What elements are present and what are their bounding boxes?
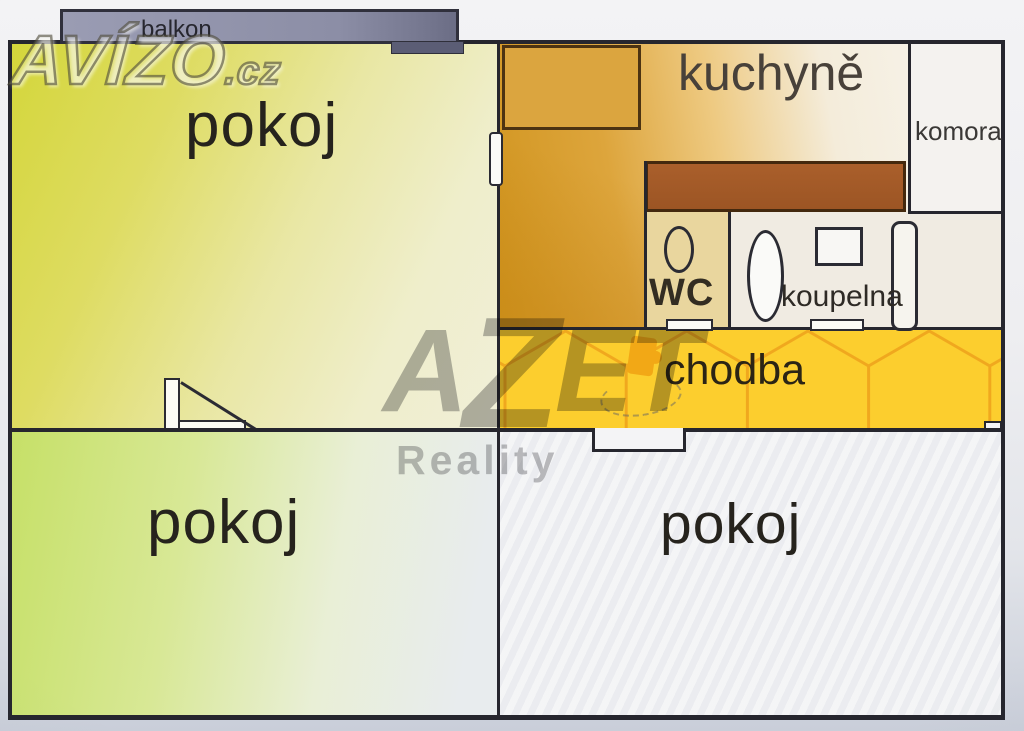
wall-kitchen-pantry — [908, 42, 911, 214]
room-bottom-right — [497, 430, 1003, 717]
corner-tab — [984, 421, 1002, 430]
toilet-fixture — [664, 226, 694, 273]
kitchen-counter — [645, 161, 906, 212]
kitchen-label: kuchyně — [678, 48, 864, 98]
wall-pantry-bottom — [908, 211, 1004, 214]
bathtub-fixture — [747, 230, 784, 322]
bathroom-door-fixture — [891, 221, 918, 331]
avizo-text: AVÍZO — [9, 21, 228, 99]
page: balkon pokoj kuchyně komo — [0, 0, 1024, 731]
bathroom-door-marker — [810, 319, 864, 331]
room-bottom-right-label: pokoj — [660, 496, 801, 553]
pantry-label: komora — [915, 118, 1002, 144]
wall-wc-bathroom — [728, 212, 731, 330]
room-bottom-left-label: pokoj — [147, 492, 300, 554]
avizo-tld: .cz — [223, 49, 282, 93]
washing-machine-fixture — [815, 227, 863, 266]
bathroom-label: koupelna — [781, 282, 903, 312]
floor-plan: balkon pokoj kuchyně komo — [0, 0, 1024, 731]
watermark-reality: Reality — [396, 437, 558, 484]
balcony-door — [391, 41, 464, 54]
wall-left — [8, 40, 12, 720]
wall-bottom — [8, 715, 1005, 720]
room-top-left-label: pokoj — [185, 95, 338, 157]
kitchen-cabinet — [502, 45, 641, 130]
watermark-avizo: AVÍZO.cz — [9, 20, 285, 100]
kitchen-door — [489, 132, 503, 186]
